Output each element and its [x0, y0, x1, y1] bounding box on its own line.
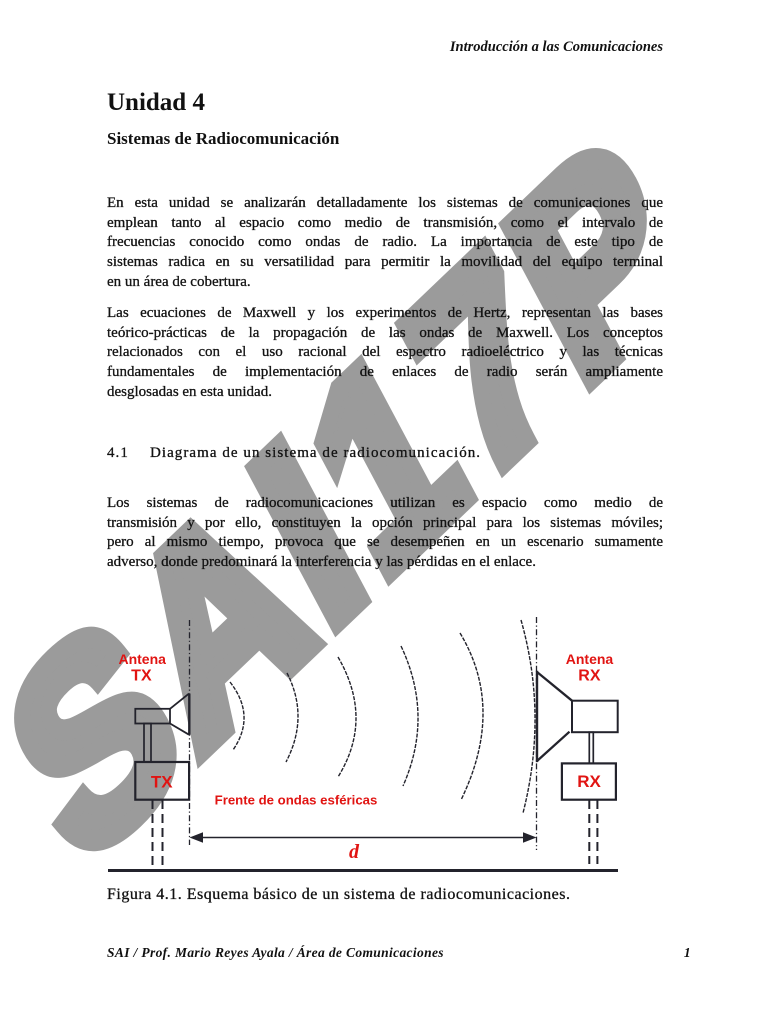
svg-text:TX: TX [151, 773, 173, 792]
svg-text:RX: RX [577, 772, 601, 791]
svg-text:Antena: Antena [118, 651, 166, 667]
svg-text:TX: TX [131, 668, 152, 685]
svg-text:Frente de ondas esféricas: Frente de ondas esféricas [215, 793, 378, 808]
svg-text:RX: RX [578, 668, 601, 685]
svg-text:Antena: Antena [566, 651, 614, 667]
svg-text:d: d [349, 841, 360, 863]
